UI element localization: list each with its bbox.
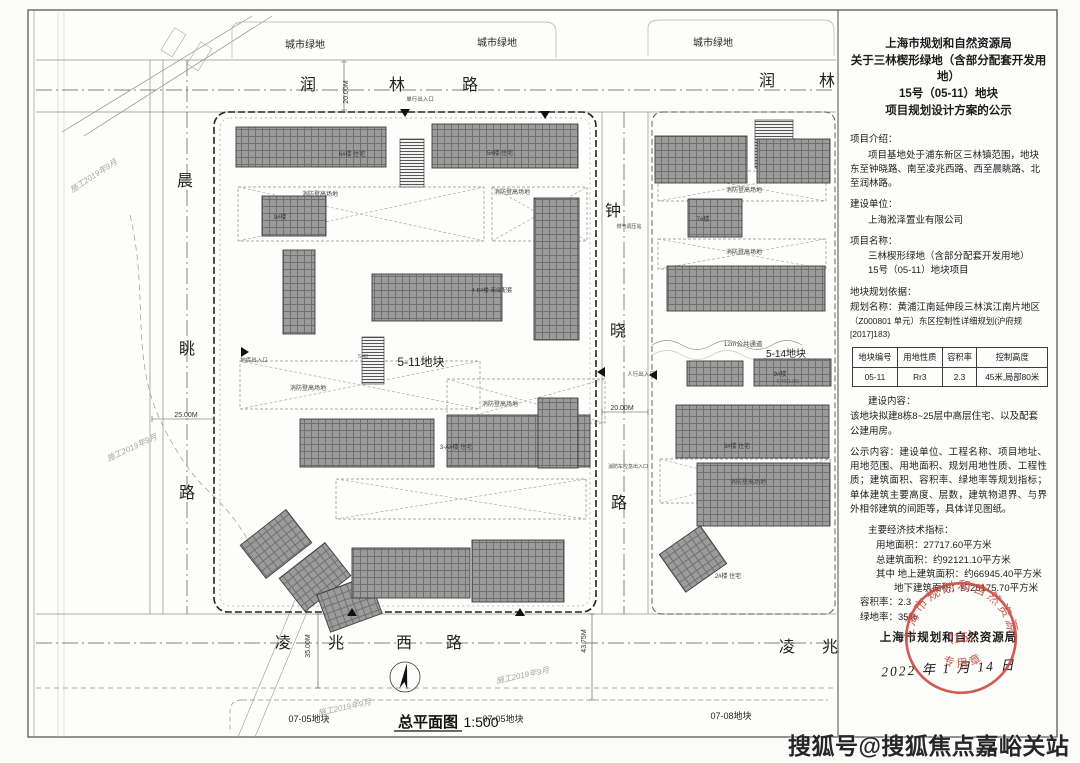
section-builder: 建设单位： 上海淞泽置业有限公司 — [850, 198, 1047, 228]
scanned-planning-notice: 城市绿地城市绿地城市绿地润林路润林晨眺路钟晓路凌兆西路凌兆5-11地块5-14地… — [0, 0, 1080, 763]
map-label: 5.40 — [358, 354, 368, 360]
map-label: 地库出入口 — [240, 356, 268, 364]
map-label: 城市绿地 — [477, 36, 517, 49]
map-label: 6.40(1.85) — [777, 379, 800, 385]
map-label: 20.00M — [343, 80, 350, 104]
section-content: 建设内容： 该地块拟建8栋8~25层中高层住宅、以及配套公建用房。 — [850, 395, 1047, 439]
map-label: 43.75M — [581, 629, 588, 653]
building-footprint — [667, 266, 825, 311]
builder-label: 建设单位： — [850, 198, 1047, 212]
map-label: 燃气调压站 — [616, 223, 641, 230]
map-label: 4-B#楼 商业配套 — [472, 286, 513, 294]
building-footprint — [655, 136, 747, 183]
plan-title: 总平面图 — [398, 713, 458, 731]
map-label: 消防登高场地 — [726, 186, 762, 194]
basis-line: 规划名称：黄浦江南延伸段三林滨江南片地区 — [850, 301, 1047, 315]
table-header: 用地性质 — [897, 348, 942, 367]
section-basis: 地块规划依据： 规划名称：黄浦江南延伸段三林滨江南片地区 （Z000801 单元… — [850, 286, 1047, 341]
building-footprint — [262, 196, 326, 236]
plan-scale: 1:500 — [463, 714, 498, 730]
building-footprint — [236, 127, 386, 167]
table-cell: 05-11 — [853, 367, 898, 386]
intro-text: 项目基地处于浦东新区三林镇范围，地块东至钟晓路、南至凌兆西路、西至晨眺路、北至润… — [850, 149, 1047, 192]
map-label: 消防登高场地 — [302, 190, 338, 198]
map-label: 5#楼 住宅 — [487, 149, 513, 157]
map-label: 晓 — [610, 322, 626, 340]
title-line: 关于三林楔形绿地（含部分配套开发用地） — [850, 53, 1047, 86]
basis-line: （Z000801 单元）东区控制性详细规划(沪府规[2017]183) — [850, 315, 1047, 340]
map-label: 路 — [446, 634, 462, 652]
project-label: 项目名称： — [850, 235, 1047, 249]
map-label: 路 — [611, 494, 627, 512]
building-footprint — [283, 250, 315, 334]
map-label: 5-11地块 — [397, 355, 444, 369]
building-footprint — [432, 124, 578, 168]
map-label: 消防登高场地 — [494, 188, 530, 196]
map-label: 润 — [759, 72, 775, 90]
table-header: 容积率 — [942, 348, 977, 367]
building-footprint — [757, 139, 830, 183]
map-label: 6#楼 住宅 — [339, 150, 365, 158]
map-label: 林 — [389, 76, 405, 94]
map-label: 消防登高场地 — [482, 400, 518, 408]
map-label: 07-08地块 — [710, 710, 751, 721]
building-footprint — [352, 548, 470, 598]
table-header: 控制高度 — [977, 348, 1048, 367]
map-label: 消防车应急出入口 — [608, 463, 648, 470]
map-label: 5-14地块 — [766, 347, 806, 360]
map-label: 城市绿地 — [285, 38, 325, 51]
building-footprint — [472, 540, 564, 602]
builder-text: 上海淞泽置业有限公司 — [850, 214, 1047, 228]
section-intro: 项目介绍： 项目基地处于浦东新区三林镇范围，地块东至钟晓路、南至凌兆西路、西至晨… — [850, 133, 1047, 191]
sohu-watermark: 搜狐号@搜狐焦点嘉峪关站 — [788, 727, 1069, 761]
building-footprint — [687, 361, 743, 386]
map-label: 兆 — [328, 634, 344, 652]
map-label: 3-A#楼 住宅 — [440, 443, 472, 451]
map-label: 路 — [179, 484, 195, 502]
map-label: 林 — [819, 72, 835, 90]
ramp-hatch — [362, 337, 384, 384]
map-label: 12m公共通道 — [724, 339, 763, 348]
map-label: 西 — [396, 635, 412, 652]
ramp-hatch — [400, 139, 424, 187]
stamp-center-text: （15） — [939, 628, 982, 647]
basis-label: 地块规划依据： — [850, 286, 1047, 300]
map-label: 9#楼 — [774, 370, 787, 378]
building-footprint — [534, 198, 579, 340]
building-footprint — [676, 405, 829, 458]
table-cell: 2.3 — [942, 367, 977, 386]
notice-title: 上海市规划和自然资源局 关于三林楔形绿地（含部分配套开发用地） 15号（05-1… — [850, 36, 1047, 119]
title-line: 上海市规划和自然资源局 — [850, 36, 1047, 53]
title-line: 项目规划设计方案的公示 — [850, 103, 1047, 120]
stamp-bottom-text: 专用章 — [940, 649, 986, 672]
section-project-name: 项目名称： 三林楔形绿地（含部分配套开发用地） 15号（05-11）地块项目 — [850, 235, 1047, 279]
content-text: 该地块拟建8栋8~25层中高层住宅、以及配套公建用房。 — [850, 410, 1047, 439]
title-line: 15号（05-11）地块 — [850, 86, 1047, 103]
content-label: 建设内容： — [850, 395, 1047, 409]
indicator-line: 总建筑面积：约92121.10平方米 — [850, 554, 1047, 568]
map-label: 路 — [462, 76, 478, 94]
map-label: 35.00M — [305, 634, 312, 658]
map-label: 2#楼 住宅 — [715, 572, 741, 580]
indicators-label: 主要经济技术指标： — [850, 524, 1047, 538]
official-stamp: 上海市规划和自然资源局 （15） 专用章 — [893, 570, 1029, 706]
map-label: 7#楼 — [697, 215, 710, 223]
map-label: 消防登高场地 — [730, 478, 766, 486]
table-cell: 45米,局部80米 — [977, 367, 1048, 386]
building-footprint — [697, 463, 830, 526]
map-label: 单行出入口 — [406, 95, 434, 103]
building-footprint — [372, 274, 502, 321]
notice-panel: 上海市规划和自然资源局 关于三林楔形绿地（含部分配套开发用地） 15号（05-1… — [839, 10, 1058, 737]
indicator-line: 用地面积：27717.60平方米 — [850, 539, 1047, 553]
table-cell: Rr3 — [897, 367, 942, 386]
intro-label: 项目介绍： — [850, 133, 1047, 147]
plan-parameters-table: 地块编号用地性质容积率控制高度05-11Rr32.345米,局部80米 — [852, 347, 1048, 387]
map-label: 眺 — [179, 340, 195, 358]
map-label: 25.00M — [174, 412, 198, 419]
map-label: 3#楼 住宅 — [724, 442, 750, 450]
project-name-line: 15号（05-11）地块项目 — [850, 264, 1047, 278]
map-label: 凌 — [779, 638, 795, 656]
table-header: 地块编号 — [853, 348, 898, 367]
map-label: 20.00M — [610, 405, 634, 412]
map-label: 钟 — [605, 202, 621, 220]
building-footprint — [300, 419, 434, 467]
map-label: 9#楼 — [274, 213, 287, 221]
map-label: 润 — [300, 76, 316, 94]
map-label: 凌 — [275, 634, 291, 652]
map-label: 消防登高场地 — [290, 384, 326, 392]
map-label: 消防登高场地 — [726, 248, 762, 256]
building-footprint — [538, 398, 578, 468]
map-label: 城市绿地 — [693, 36, 733, 49]
map-label: 晨 — [177, 173, 193, 190]
project-name-line: 三林楔形绿地（含部分配套开发用地） — [850, 250, 1047, 264]
plan-title-block: 总平面图 1:500 — [394, 713, 499, 731]
map-label: 兆 — [822, 638, 838, 656]
publicity-text: 公示内容：建设单位、工程名称、项目地址、用地范围、用地面积、规划用地性质、工程性… — [850, 446, 1047, 517]
